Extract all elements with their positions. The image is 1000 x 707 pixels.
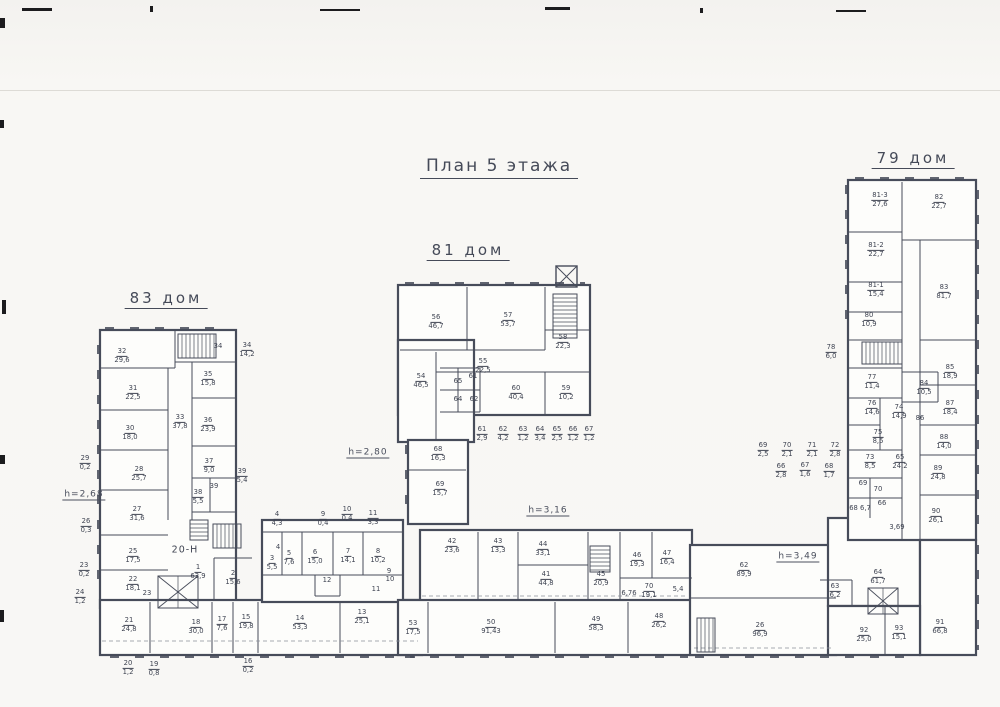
room-label: 786,0 <box>826 344 837 360</box>
room-label: 8381,7 <box>936 284 951 300</box>
room-label: 9166,8 <box>932 619 947 635</box>
ceiling-height-mark: h=2,80 <box>346 448 389 459</box>
room-label: 5822,3 <box>555 334 570 350</box>
room-label: 11 <box>371 586 382 594</box>
room-label: 6524,2 <box>892 454 907 470</box>
room-label: 177,6 <box>217 616 228 632</box>
room-label: 44,3 <box>272 511 283 527</box>
room-label: 714,1 <box>340 548 355 564</box>
room-label: 6289,9 <box>736 562 751 578</box>
room-label: 290,2 <box>80 455 91 471</box>
room-label: 702,1 <box>782 442 793 458</box>
room-label: 758,5 <box>873 429 884 445</box>
room-label: 9225,0 <box>856 627 871 643</box>
house-title-house-81: 81 дом <box>427 241 510 261</box>
room-label: 7019,1 <box>641 583 656 599</box>
room-label: 190,8 <box>149 661 160 677</box>
room-label: 7614,6 <box>864 400 879 416</box>
room-label: 35,5 <box>267 555 278 571</box>
room-label: 3,69 <box>888 524 905 532</box>
house-title-house-79: 79 дом <box>872 149 955 169</box>
building-outline-wall <box>398 600 694 655</box>
room-label: 1453,3 <box>292 615 307 631</box>
room-label: 2696,9 <box>752 622 767 638</box>
scan-artifact <box>150 6 153 12</box>
room-label: 4520,9 <box>593 571 608 587</box>
room-label: 4619,3 <box>629 552 644 568</box>
room-label: 8924,8 <box>930 465 945 481</box>
room-label: 738,5 <box>865 454 876 470</box>
scan-artifact <box>320 9 360 11</box>
room-label: 8814,0 <box>936 434 951 450</box>
room-label: 6,76 <box>620 590 637 598</box>
room-label: 5646,7 <box>428 314 443 330</box>
room-label: 379,0 <box>204 458 215 474</box>
house-title-house-83: 83 дом <box>125 289 208 309</box>
room-label: 230,2 <box>79 562 90 578</box>
room-label: 643,4 <box>535 426 546 442</box>
room-label: 4313,3 <box>490 538 505 554</box>
scan-artifact <box>0 455 5 464</box>
scan-artifact <box>0 18 5 28</box>
room-label: 8518,9 <box>942 364 957 380</box>
room-label: 3018,0 <box>122 425 137 441</box>
floor-plan-drawing <box>0 0 1000 707</box>
room-label: 2517,5 <box>125 548 140 564</box>
ceiling-height-mark: h=3,49 <box>776 552 819 563</box>
room-label: 241,2 <box>75 589 86 605</box>
room-label: 39 <box>209 483 220 491</box>
scan-artifact <box>0 120 4 128</box>
room-label: 1519,8 <box>238 614 253 630</box>
room-label: 615,0 <box>307 549 322 565</box>
room-label: 681,7 <box>824 463 835 479</box>
room-label: 722,8 <box>830 442 841 458</box>
room-label: 5446,5 <box>413 373 428 389</box>
ceiling-height-mark: h=3,16 <box>526 506 569 517</box>
room-label: 34 <box>213 343 224 351</box>
room-label: 113,3 <box>368 510 379 526</box>
room-label: 4223,6 <box>444 538 459 554</box>
ceiling-height-mark: h=2,68 <box>62 490 105 501</box>
room-label: 57,6 <box>284 550 295 566</box>
room-label: 3229,6 <box>114 348 129 364</box>
room-label: 662,8 <box>776 463 787 479</box>
room-label: 4 <box>275 544 281 552</box>
room-label: 1325,1 <box>354 609 369 625</box>
room-label: 62 <box>469 396 480 404</box>
room-label: 69 <box>858 480 869 488</box>
room-label: 160,2 <box>243 658 254 674</box>
room-label: 9315,1 <box>891 625 906 641</box>
room-label: 7414,9 <box>891 404 906 420</box>
room-label: 661,2 <box>568 426 579 442</box>
room-label: 8718,4 <box>942 400 957 416</box>
room-label: 163,9 <box>190 564 205 580</box>
room-label: 671,6 <box>800 462 811 478</box>
room-label: 652,5 <box>552 426 563 442</box>
room-label: 260,3 <box>81 518 92 534</box>
room-label: 5753,7 <box>500 312 515 328</box>
floor-plan-scan: План 5 этажа 3229,6343414,23515,83122,53… <box>0 0 1000 707</box>
room-label: 12 <box>322 577 333 585</box>
room-label: 671,2 <box>584 426 595 442</box>
room-label: 8222,7 <box>931 194 946 210</box>
scan-artifact <box>836 10 866 12</box>
room-label: 712,1 <box>807 442 818 458</box>
room-label: 5317,5 <box>405 620 420 636</box>
room-label: 5522,5 <box>475 358 490 374</box>
room-label: 201,2 <box>123 660 134 676</box>
room-label: 4144,8 <box>538 571 553 587</box>
room-label: 86 <box>915 415 926 423</box>
room-label: 81-115,4 <box>867 282 884 298</box>
room-label: 636,2 <box>830 583 841 599</box>
page-title: План 5 этажа <box>420 156 578 179</box>
room-label: 20-Н <box>171 546 200 557</box>
room-label: 3414,2 <box>239 342 254 358</box>
room-label: 6915,7 <box>432 481 447 497</box>
room-label: 5910,2 <box>558 385 573 401</box>
room-label: 70 <box>873 486 884 494</box>
scan-artifact <box>0 610 4 622</box>
room-label: 631,2 <box>518 426 529 442</box>
room-label: 64 <box>453 396 464 404</box>
building-outline-wall <box>920 540 976 655</box>
room-label: 6040,4 <box>508 385 523 401</box>
room-label: 65 <box>453 378 464 386</box>
room-label: 5,4 <box>672 586 685 594</box>
room-label: 3122,5 <box>125 385 140 401</box>
room-label: 3515,8 <box>200 371 215 387</box>
room-label: 624,2 <box>498 426 509 442</box>
scan-artifact <box>700 8 703 13</box>
room-label: 81-327,6 <box>871 192 888 208</box>
room-label: 4716,4 <box>659 550 674 566</box>
scan-artifact <box>2 300 6 314</box>
room-label: 4826,2 <box>651 613 666 629</box>
scan-artifact <box>545 7 570 10</box>
room-label: 2825,7 <box>131 466 146 482</box>
room-label: 4433,1 <box>535 541 550 557</box>
room-label: 100,4 <box>342 506 353 522</box>
room-label: 612,9 <box>477 426 488 442</box>
room-label: 66 <box>877 500 888 508</box>
room-label: 90,4 <box>318 511 329 527</box>
room-label: 2731,6 <box>129 506 144 522</box>
room-label: 6461,7 <box>870 569 885 585</box>
room-label: 810,2 <box>370 548 385 564</box>
elevator-shaft-symbol <box>556 266 577 287</box>
room-label: 692,5 <box>758 442 769 458</box>
room-label: 8410,5 <box>916 380 931 396</box>
room-label: 385,5 <box>193 489 204 505</box>
room-label: 68 6,7 <box>848 505 872 513</box>
room-label: 2124,8 <box>121 617 136 633</box>
building-outline-wall <box>100 600 422 655</box>
room-label: 215,6 <box>225 570 240 586</box>
room-label: 6816,3 <box>430 446 445 462</box>
room-label: 8010,9 <box>861 312 876 328</box>
room-label: 7711,4 <box>864 374 879 390</box>
room-label: 81-222,7 <box>867 242 884 258</box>
room-label: 5091,43 <box>481 619 500 635</box>
room-label: 10 <box>385 576 396 584</box>
room-label: 2218,1 <box>125 576 140 592</box>
room-label: 3337,8 <box>172 414 187 430</box>
scan-artifact <box>22 8 52 11</box>
room-label: 61 <box>468 373 479 381</box>
room-label: 1830,0 <box>188 619 203 635</box>
room-label: 395,4 <box>237 468 248 484</box>
room-label: 23 <box>142 590 153 598</box>
room-label: 3623,9 <box>200 417 215 433</box>
room-label: 9026,1 <box>928 508 943 524</box>
room-label: 4958,3 <box>588 616 603 632</box>
